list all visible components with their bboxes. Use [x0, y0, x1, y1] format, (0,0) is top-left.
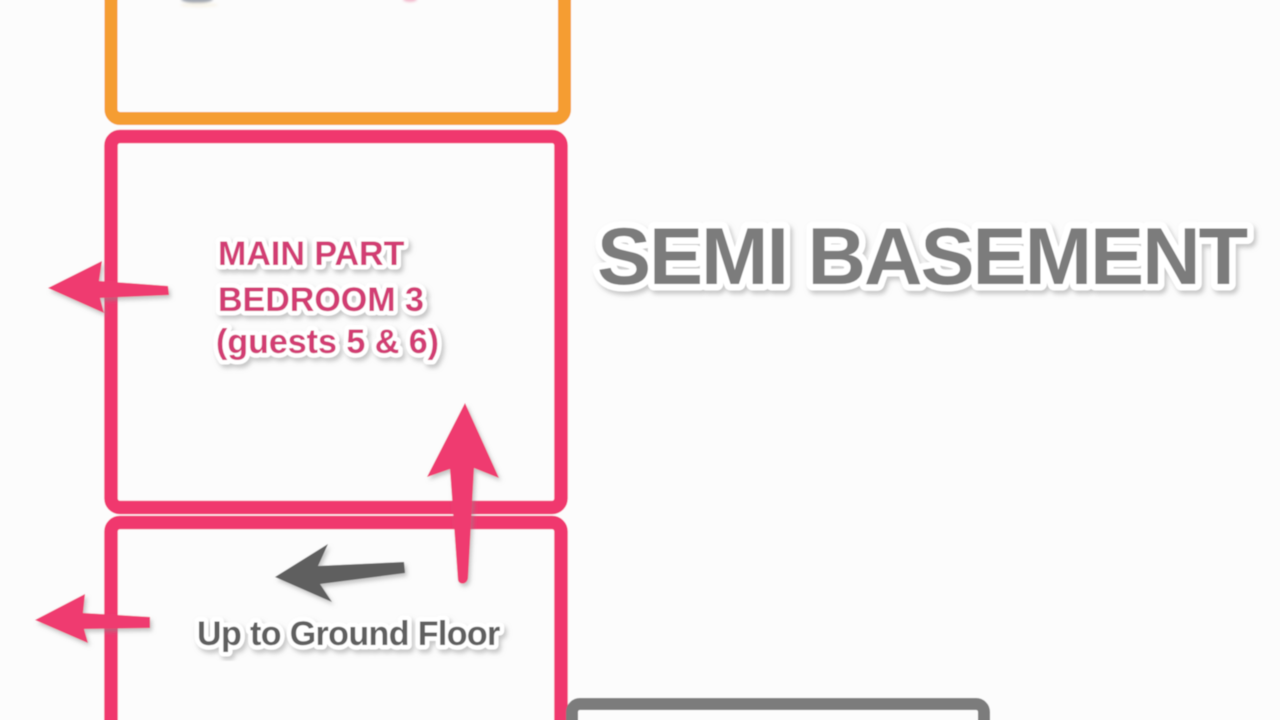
svg-text:BEDROOM 3: BEDROOM 3 — [218, 281, 424, 319]
svg-text:Up to Ground Floor: Up to Ground Floor — [197, 615, 500, 653]
svg-text:MAIN PART: MAIN PART — [218, 235, 405, 273]
svg-text:SEMI BASEMENT: SEMI BASEMENT — [597, 212, 1248, 302]
svg-text:(guests 5 & 6): (guests 5 & 6) — [216, 323, 439, 361]
